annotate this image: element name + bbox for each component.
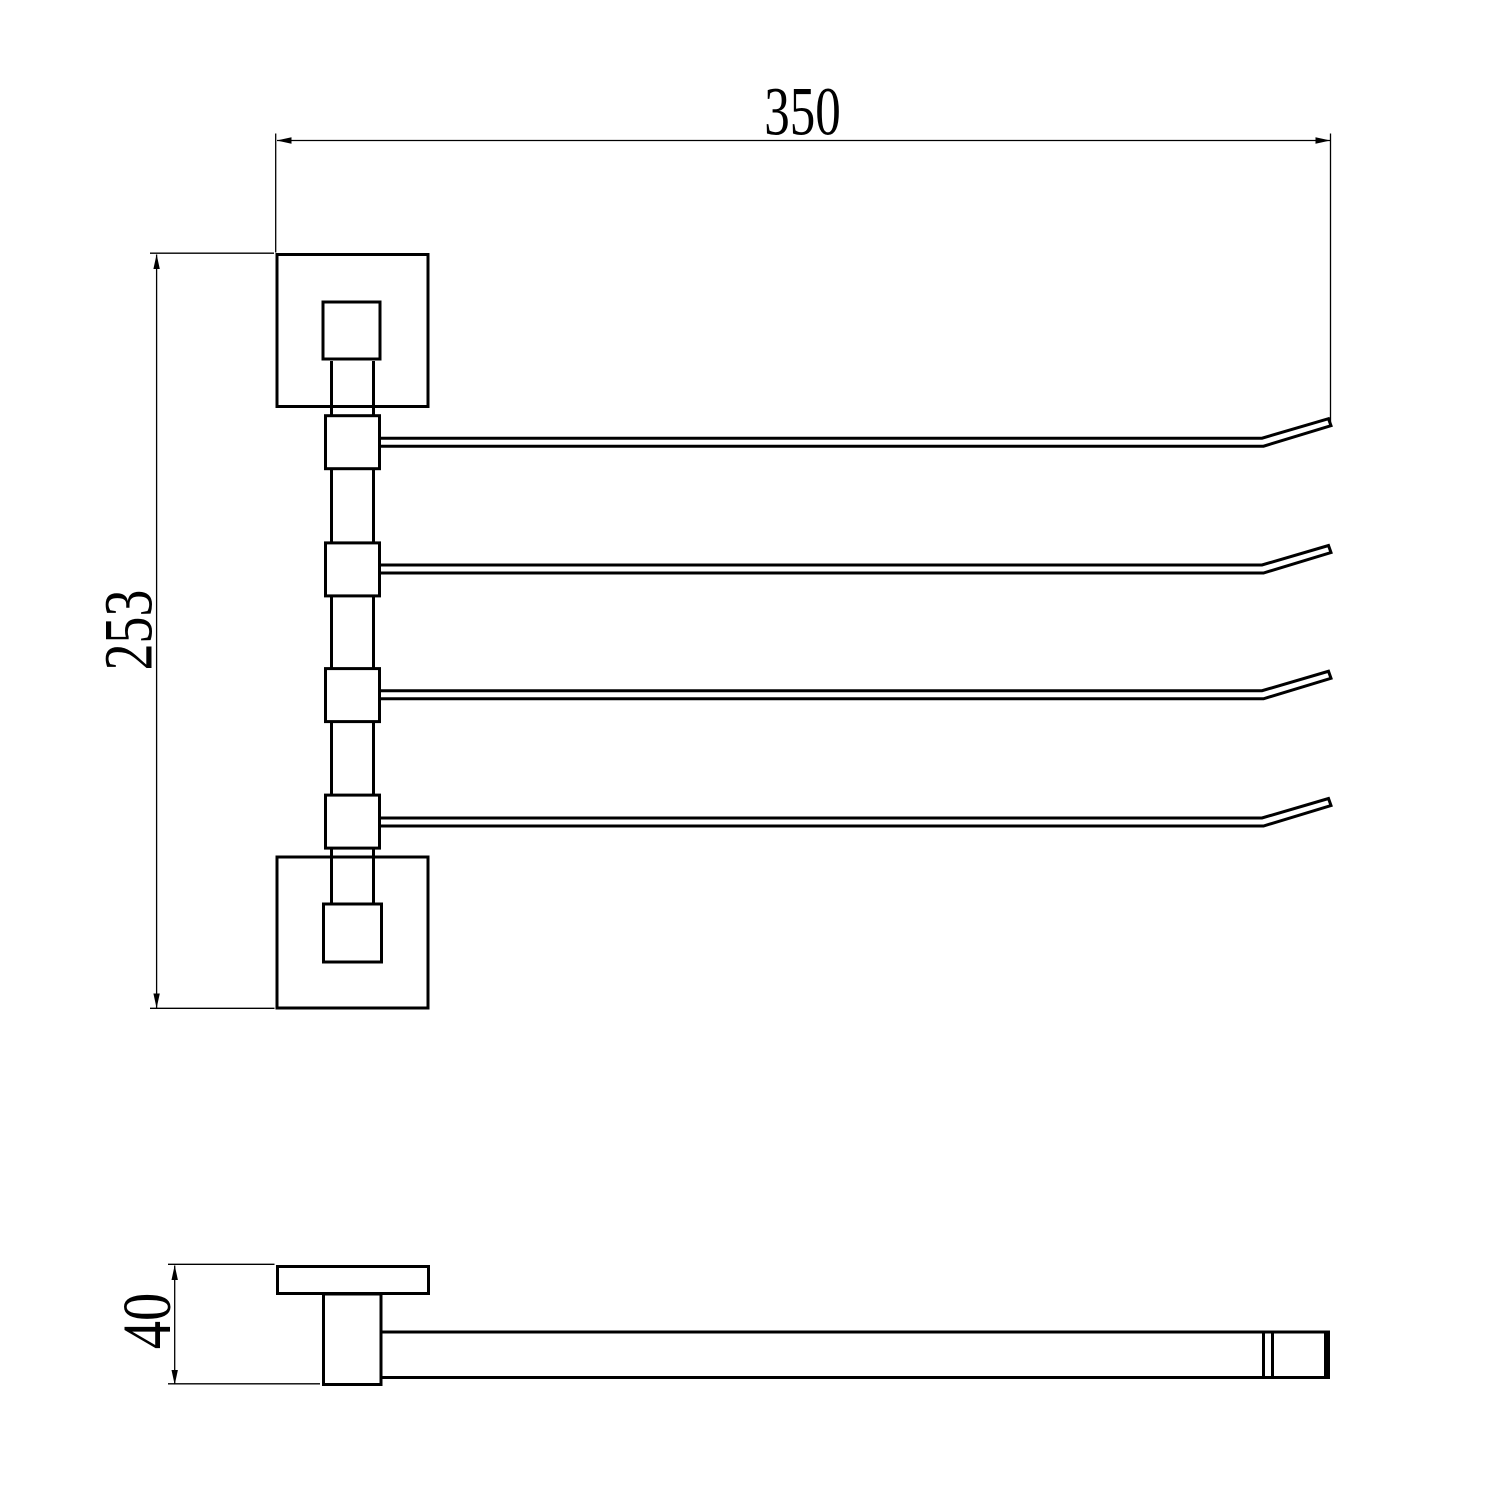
svg-text:40: 40: [109, 1293, 186, 1350]
svg-text:350: 350: [764, 74, 841, 150]
svg-text:253: 253: [91, 590, 167, 671]
